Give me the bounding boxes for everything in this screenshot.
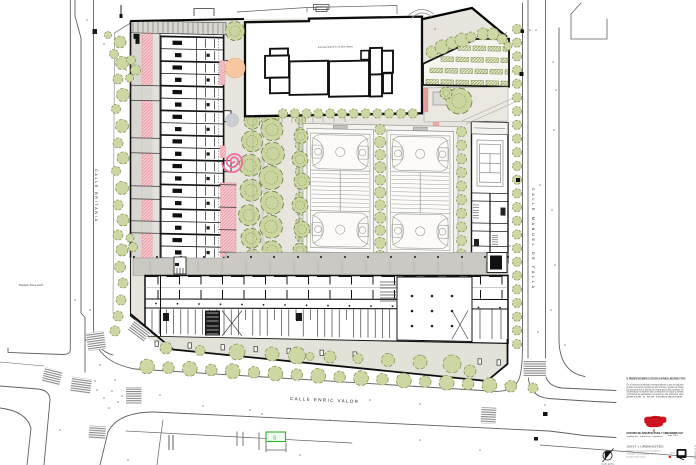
svg-text:Proyecto • plan parcial sector: Proyecto • plan parcial sector residenci… <box>627 450 661 453</box>
svg-text:arquitectos · urbanistas · ing: arquitectos · urbanistas · ingenieria <box>627 435 664 438</box>
svg-text:SANT + URBANISTES: SANT + URBANISTES <box>627 445 664 449</box>
svg-text:parcial y sus ordenanzas.: parcial y sus ordenanzas. <box>627 396 685 399</box>
svg-text:num 2019: num 2019 <box>668 435 679 437</box>
svg-text:Promotor • ayuntamiento • fase: Promotor • ayuntamiento • fase 1 <box>627 453 658 456</box>
svg-text:Escola infantil en la Mar Blav: Escola infantil en la Mar Blava <box>318 44 353 49</box>
svg-text:Escala 1:500 • fecha: Escala 1:500 • fecha <box>627 457 647 459</box>
svg-text:Parque Torre Golf: Parque Torre Golf <box>19 283 43 287</box>
svg-text:EL PRESENTE DOCUMENTO ES COPIA: EL PRESENTE DOCUMENTO ES COPIA DEL PLAN … <box>627 377 686 381</box>
